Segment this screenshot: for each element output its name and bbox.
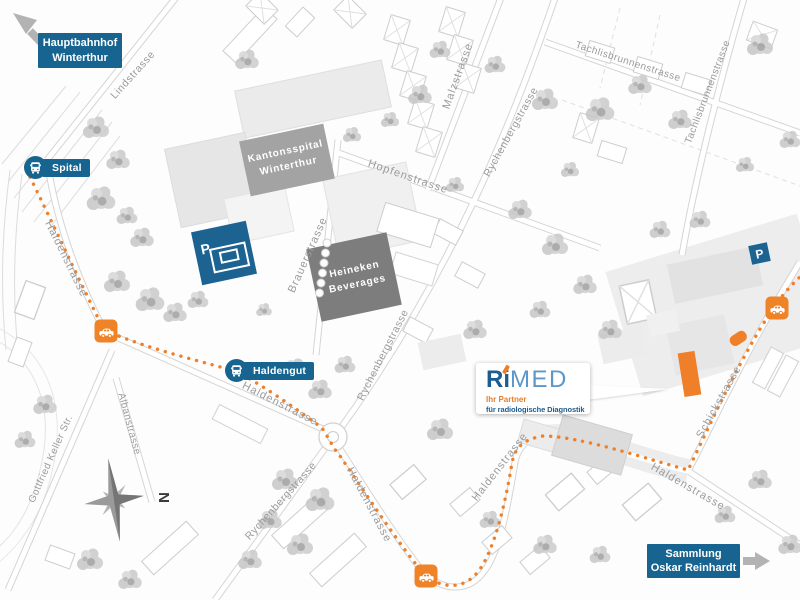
car-icon	[95, 320, 118, 343]
compass-north-label: N	[155, 492, 172, 503]
map-canvas: Hauptbahnhof Winterthur Sammlung Oskar R…	[0, 0, 800, 600]
destination-line: Hauptbahnhof	[38, 36, 122, 50]
bus-icon	[225, 359, 248, 382]
rimed-logo: RiMED	[476, 363, 590, 392]
rimed-logo-callout: RiMED Ihr Partner für radiologische Diag…	[476, 363, 590, 414]
bus-stop-haldengut: Haldengut	[225, 359, 314, 382]
bus-stop-label: Spital	[42, 159, 90, 177]
car-icon	[415, 565, 438, 588]
destination-line: Oskar Reinhardt	[647, 561, 740, 575]
bus-stop-label: Haldengut	[243, 362, 314, 380]
destination-hauptbahnhof: Hauptbahnhof Winterthur	[38, 33, 122, 68]
logo-letters-med: MED	[510, 366, 568, 393]
roundabout	[319, 423, 347, 451]
destination-sammlung: Sammlung Oskar Reinhardt	[647, 544, 740, 578]
bus-icon	[24, 156, 47, 179]
logo-letter-r: R	[486, 366, 503, 393]
parking-garage: P	[191, 221, 257, 285]
parking-lot-icon	[209, 241, 250, 273]
parking-marker: P	[748, 242, 771, 265]
destination-line: Winterthur	[38, 51, 122, 65]
destination-line: Sammlung	[647, 547, 740, 561]
callout-pointer	[587, 385, 669, 400]
logo-tagline-2: für radiologische Diagnostik	[486, 405, 590, 415]
logo-tagline-1: Ihr Partner	[486, 396, 590, 405]
logo-letter-i: i	[503, 366, 510, 393]
bus-stop-spital: Spital	[24, 156, 90, 179]
sammlung-arrow-icon	[743, 552, 770, 570]
car-icon	[766, 297, 789, 320]
